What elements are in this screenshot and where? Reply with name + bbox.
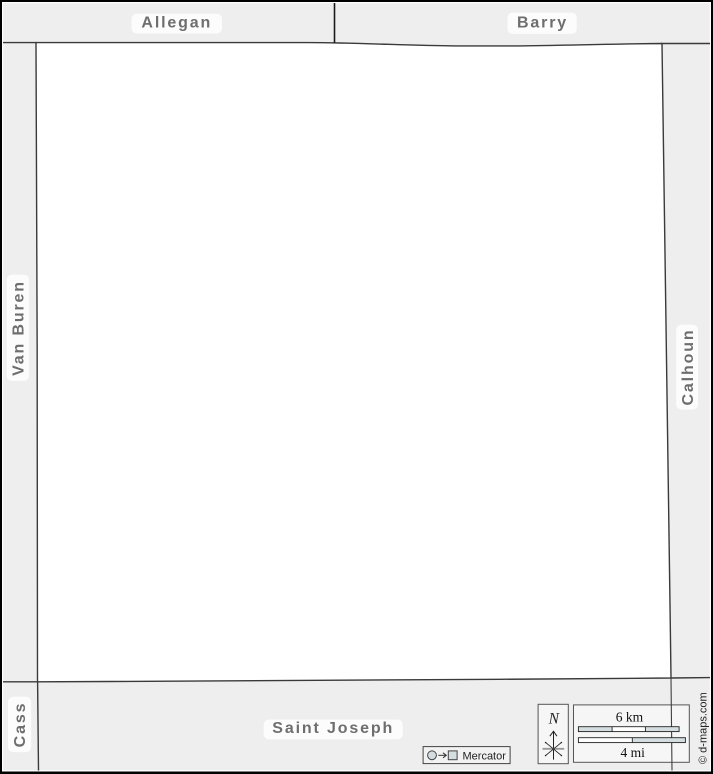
svg-text:Calhoun: Calhoun: [680, 329, 697, 406]
svg-text:Mercator: Mercator: [463, 751, 507, 763]
svg-text:Allegan: Allegan: [141, 15, 212, 32]
svg-text:6 km: 6 km: [616, 709, 644, 724]
svg-text:Cass: Cass: [12, 702, 29, 748]
svg-text:Saint Joseph: Saint Joseph: [272, 720, 394, 737]
svg-text:4 mi: 4 mi: [621, 745, 646, 760]
svg-text:Van Buren: Van Buren: [11, 280, 28, 376]
svg-text:© d-maps.com: © d-maps.com: [698, 692, 710, 764]
svg-text:Barry: Barry: [517, 15, 568, 32]
svg-text:N: N: [548, 711, 561, 728]
